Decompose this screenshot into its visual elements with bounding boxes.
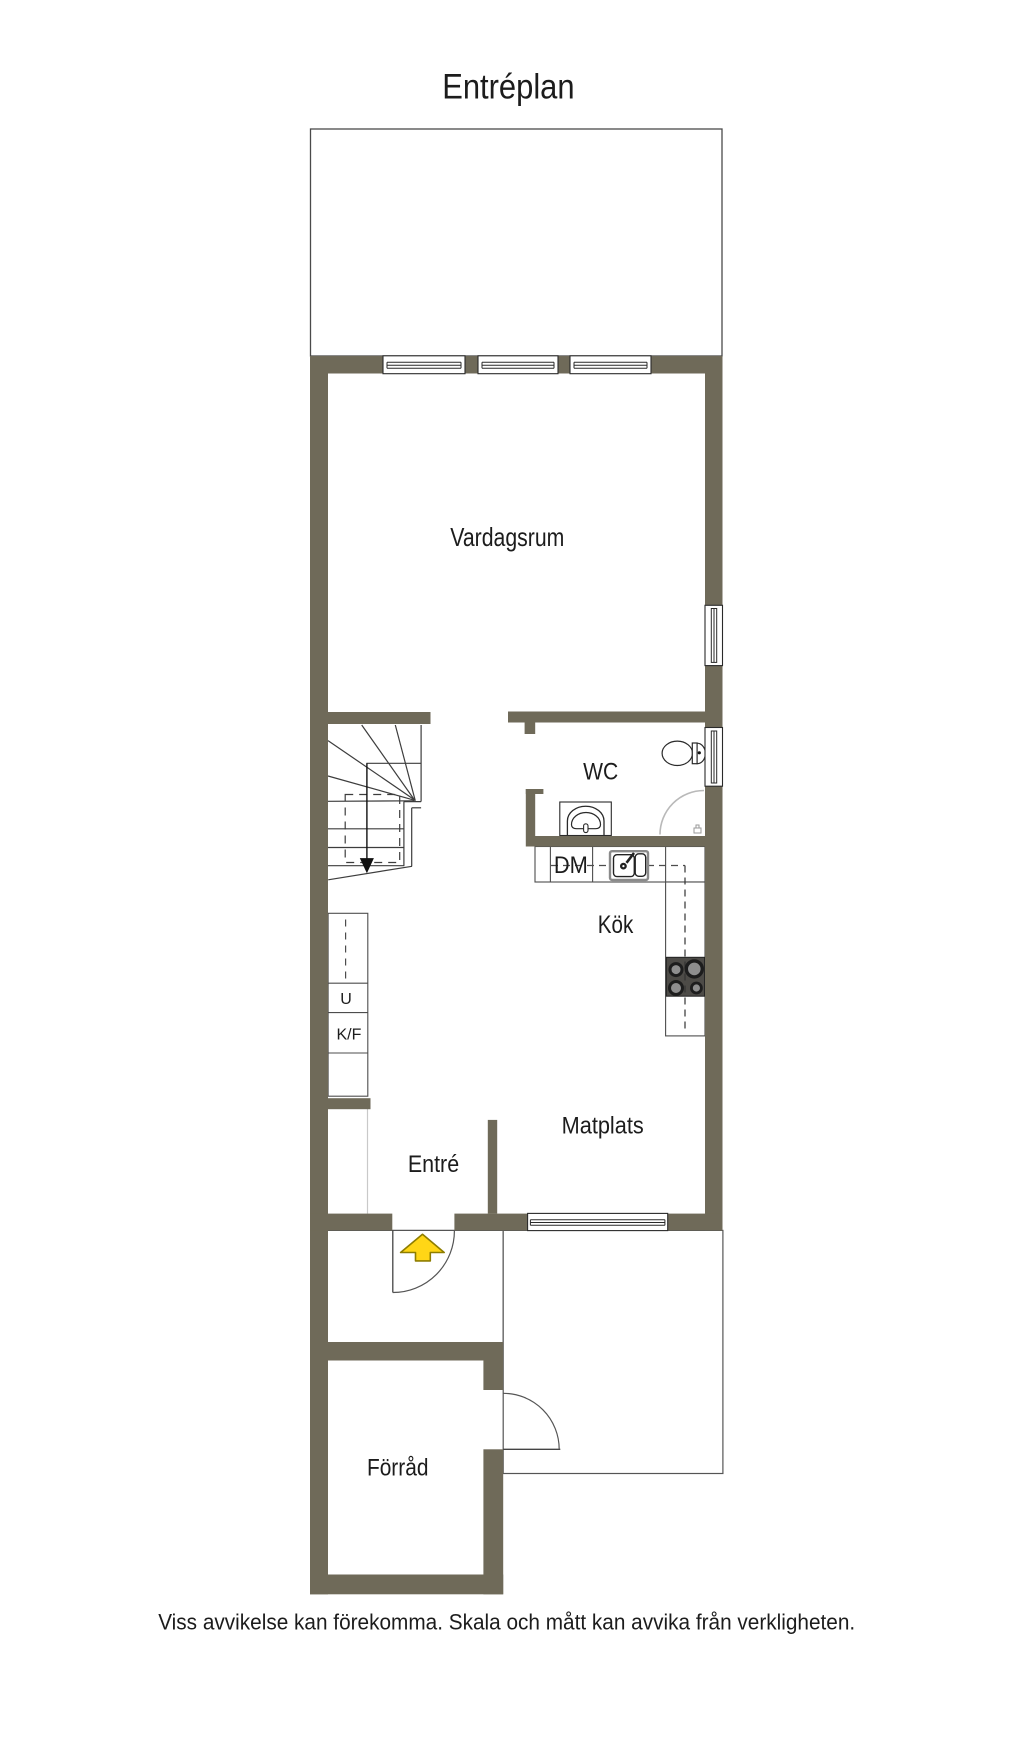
svg-text:Entréplan: Entréplan — [442, 67, 574, 106]
svg-text:Viss avvikelse kan förekomma.: Viss avvikelse kan förekomma. Skala och … — [158, 1610, 855, 1635]
svg-text:U: U — [340, 991, 352, 1008]
svg-text:K/F: K/F — [336, 1027, 361, 1044]
svg-text:Matplats: Matplats — [562, 1113, 644, 1140]
svg-text:DM: DM — [554, 852, 588, 879]
svg-text:Förråd: Förråd — [367, 1455, 429, 1482]
svg-text:Kök: Kök — [598, 911, 634, 939]
svg-text:WC: WC — [583, 759, 618, 786]
svg-text:Entré: Entré — [408, 1151, 459, 1178]
svg-text:Vardagsrum: Vardagsrum — [450, 522, 564, 552]
